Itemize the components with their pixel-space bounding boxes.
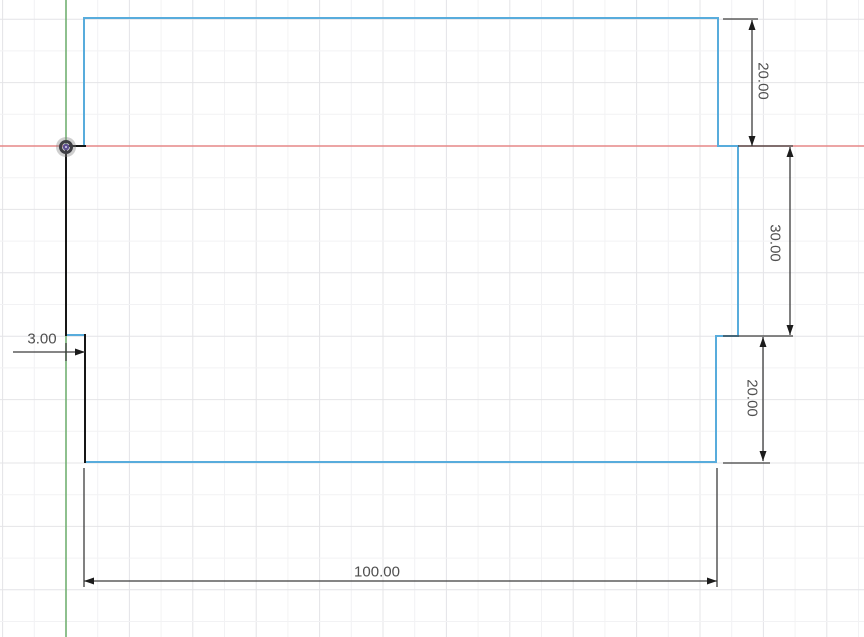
- dimension-arrow: [760, 337, 767, 347]
- dimension-layer[interactable]: 20.0030.0020.003.00100.00: [13, 19, 794, 587]
- dimension-label[interactable]: 30.00: [767, 224, 784, 262]
- dimension-arrow: [749, 136, 756, 146]
- sketch-canvas[interactable]: 20.0030.0020.003.00100.00: [0, 0, 864, 637]
- origin-layer[interactable]: [56, 137, 76, 157]
- origin-dot: [65, 146, 67, 148]
- dimension-arrow: [760, 451, 767, 461]
- origin-point-marker[interactable]: [56, 137, 76, 157]
- dimension-arrow: [84, 578, 94, 585]
- dimension-label[interactable]: 100.00: [354, 564, 400, 581]
- cad-sketch-viewport[interactable]: 20.0030.0020.003.00100.00: [0, 0, 864, 637]
- dimension-arrow: [787, 147, 794, 157]
- sketch-geometry-layer[interactable]: [66, 18, 738, 462]
- dimension-label[interactable]: 20.00: [755, 62, 772, 100]
- dimension-label[interactable]: 3.00: [27, 331, 56, 348]
- dimension-arrow: [787, 325, 794, 335]
- dimension-label[interactable]: 20.00: [744, 379, 761, 417]
- dimension-arrow: [749, 20, 756, 30]
- dimension-arrow: [707, 578, 717, 585]
- dim-bottom-width[interactable]: 100.00: [84, 468, 717, 587]
- grid-layer: [0, 0, 864, 637]
- dimension-arrow: [75, 349, 85, 356]
